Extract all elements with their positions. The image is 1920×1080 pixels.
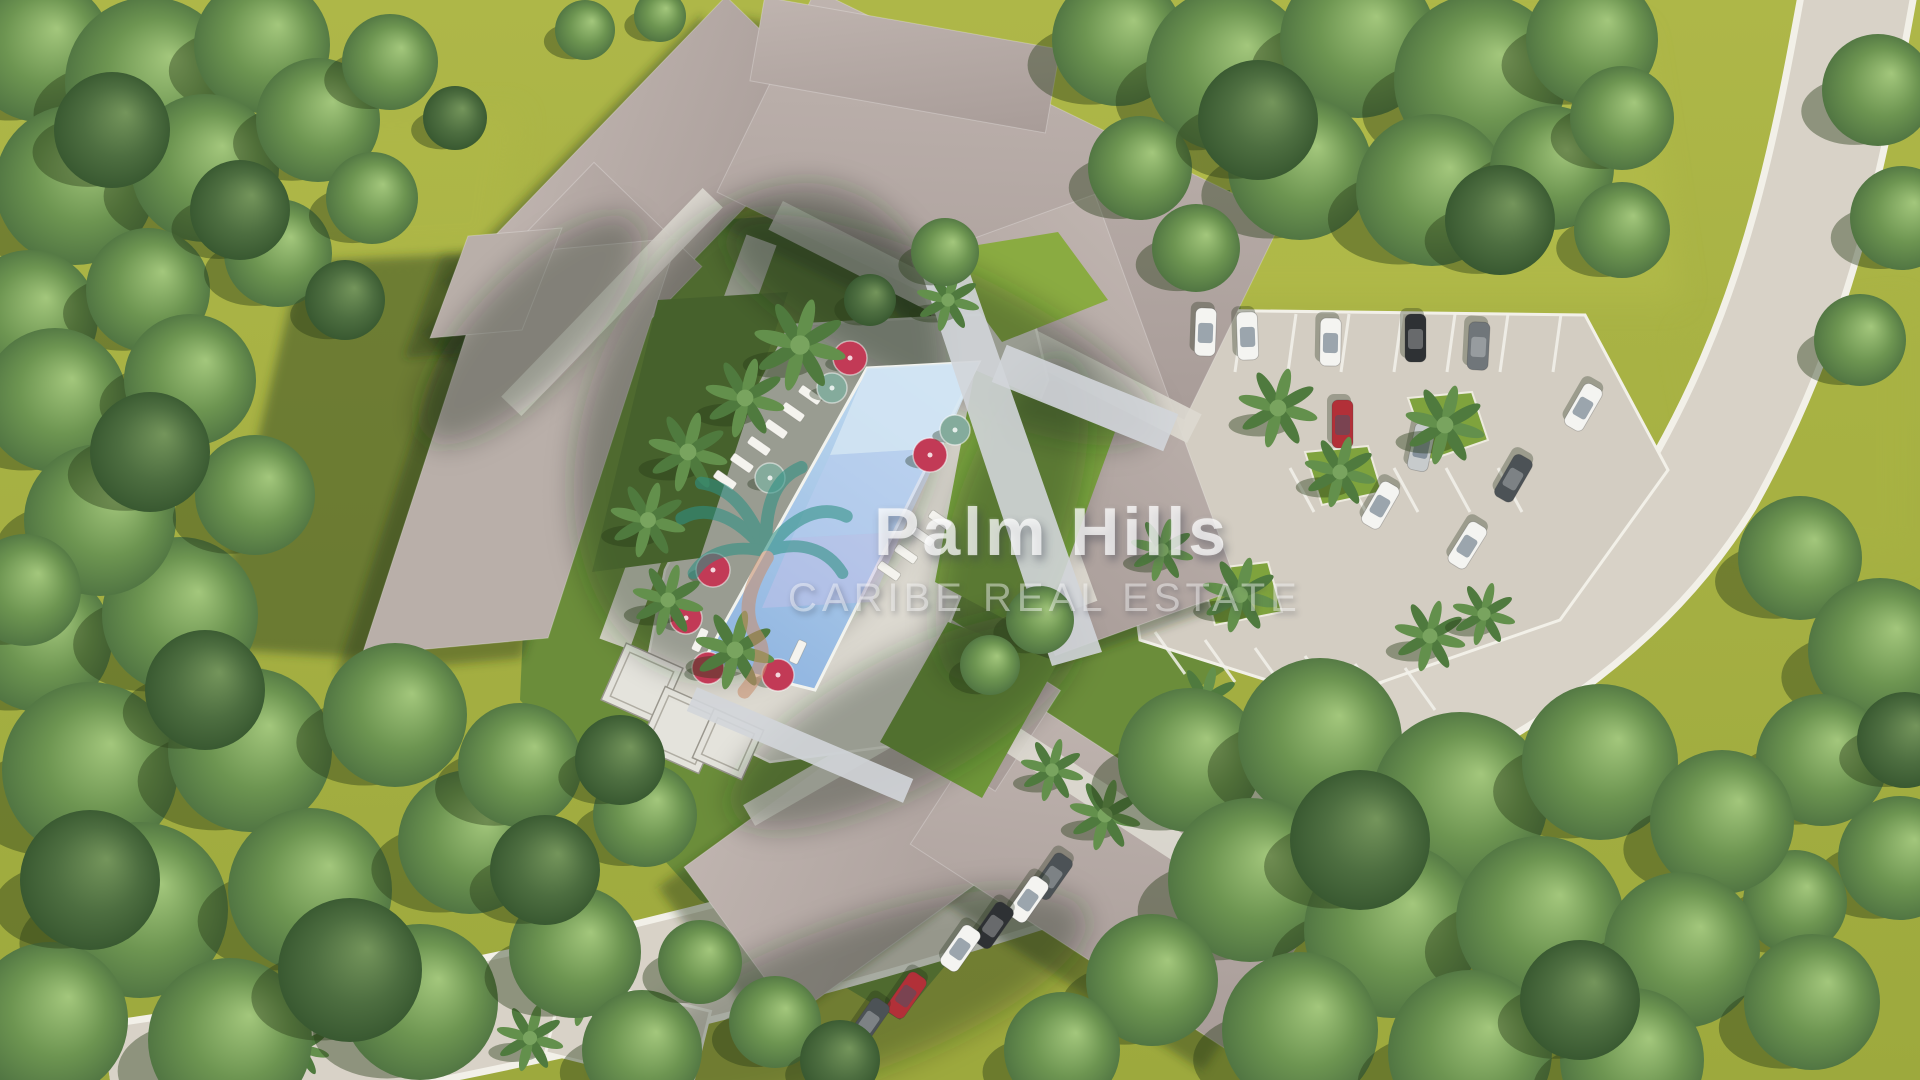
car bbox=[1189, 301, 1217, 356]
car bbox=[1462, 315, 1491, 370]
car bbox=[1231, 306, 1259, 361]
aerial-render: Palm Hills CARIBE REAL ESTATE bbox=[0, 0, 1920, 1080]
car bbox=[1400, 308, 1426, 362]
site-plan-canvas bbox=[0, 0, 1920, 1080]
car bbox=[1315, 312, 1342, 366]
